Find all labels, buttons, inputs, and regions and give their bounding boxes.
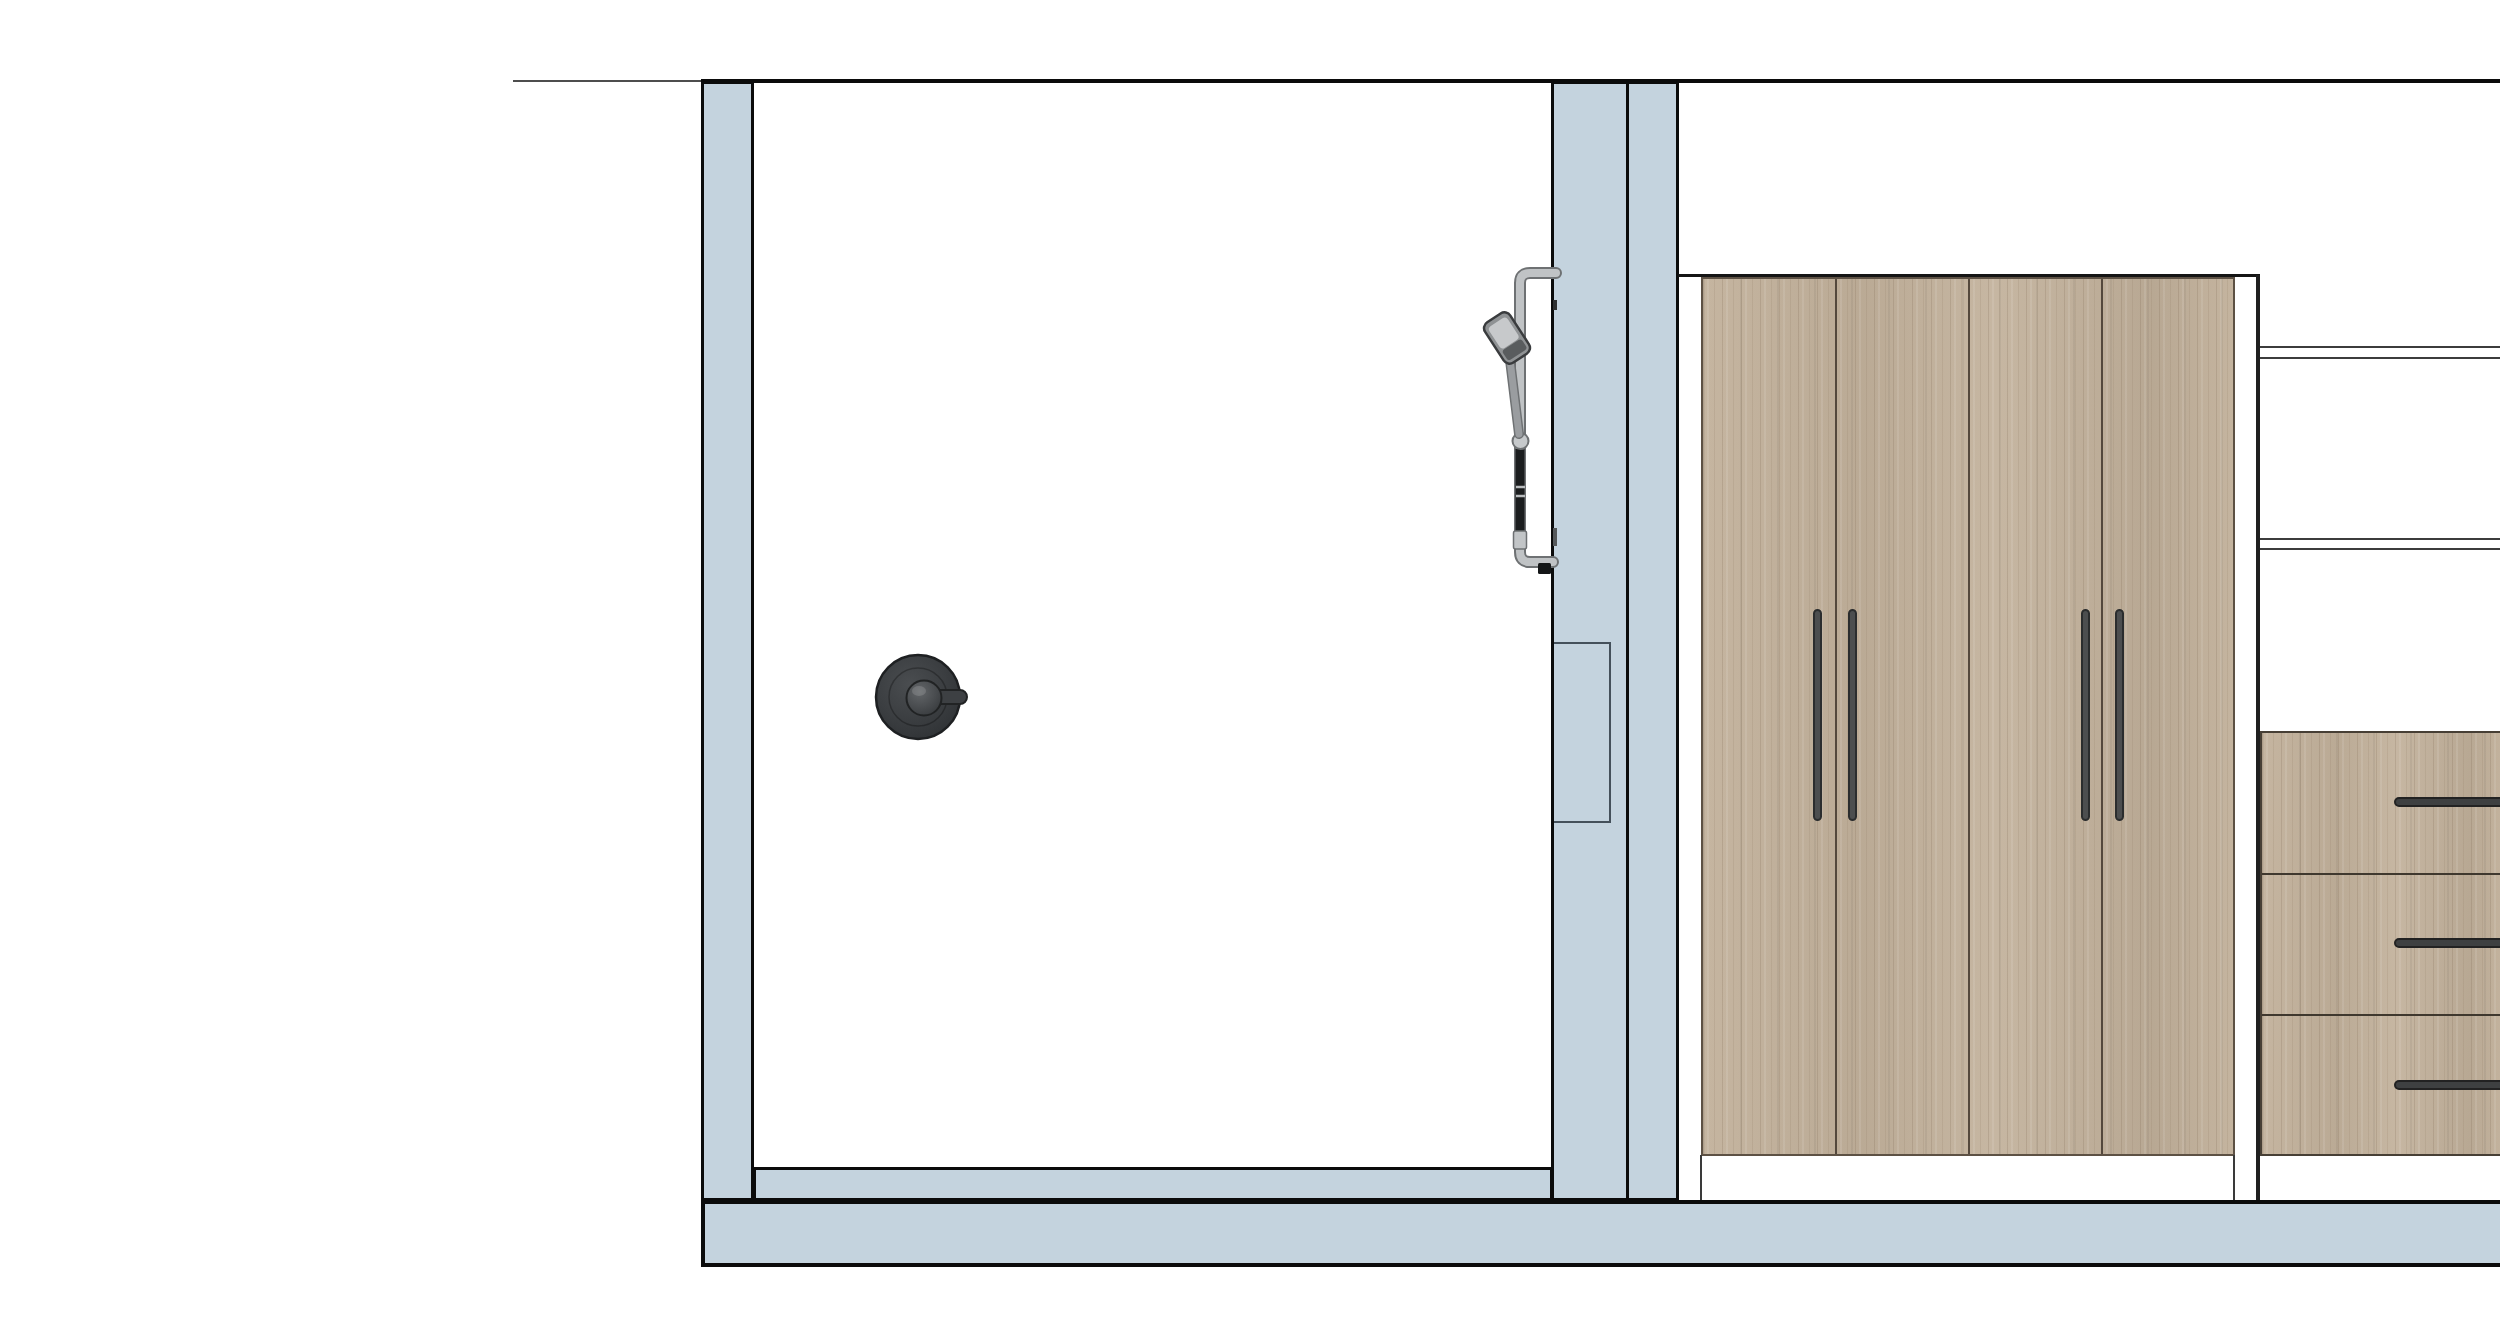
drawer-handle xyxy=(2394,797,2500,807)
water-outlet-block xyxy=(1538,563,1551,574)
wardrobe-door-handle xyxy=(2081,609,2090,821)
floor-slab xyxy=(701,1200,2500,1267)
rail-slider-knob xyxy=(1513,433,1529,449)
wardrobe-door-handle xyxy=(1813,609,1822,821)
wardrobe-plinth-line xyxy=(1700,1155,1702,1200)
door-divider xyxy=(2101,279,2103,1154)
wardrobe-door-handle xyxy=(1848,609,1857,821)
mixer-lever-bar xyxy=(922,690,967,704)
divider-wall-inner-layer xyxy=(1551,81,1630,1201)
door-divider xyxy=(1968,279,1970,1154)
wardrobe-door-handle xyxy=(2115,609,2124,821)
drawer-divider xyxy=(2262,873,2500,875)
elevation-drawing-canvas xyxy=(0,0,2500,1333)
wall-recessed-panel xyxy=(1554,642,1611,823)
open-shelf xyxy=(2260,346,2500,359)
hand-shower-rail-set xyxy=(1481,273,1557,574)
wardrobe-doors xyxy=(1701,277,2235,1156)
shower-head xyxy=(1481,310,1532,367)
drawer-handle xyxy=(2394,938,2500,948)
open-shelf xyxy=(2260,538,2500,550)
ceiling-reference-line xyxy=(513,80,703,82)
left-wall-section xyxy=(701,81,754,1201)
hose-coupling xyxy=(1514,531,1527,549)
shower-handle-tube xyxy=(1510,360,1519,434)
shower-floor-band xyxy=(753,1167,1553,1201)
mixer-knob xyxy=(907,681,942,716)
door-divider xyxy=(1835,279,1837,1154)
wardrobe-plinth-line xyxy=(2233,1155,2235,1200)
divider-wall-outer-layer xyxy=(1626,81,1679,1201)
shower-mixer-valve xyxy=(876,655,967,739)
drawer-divider xyxy=(2262,1014,2500,1016)
drawer-handle xyxy=(2394,1080,2500,1090)
